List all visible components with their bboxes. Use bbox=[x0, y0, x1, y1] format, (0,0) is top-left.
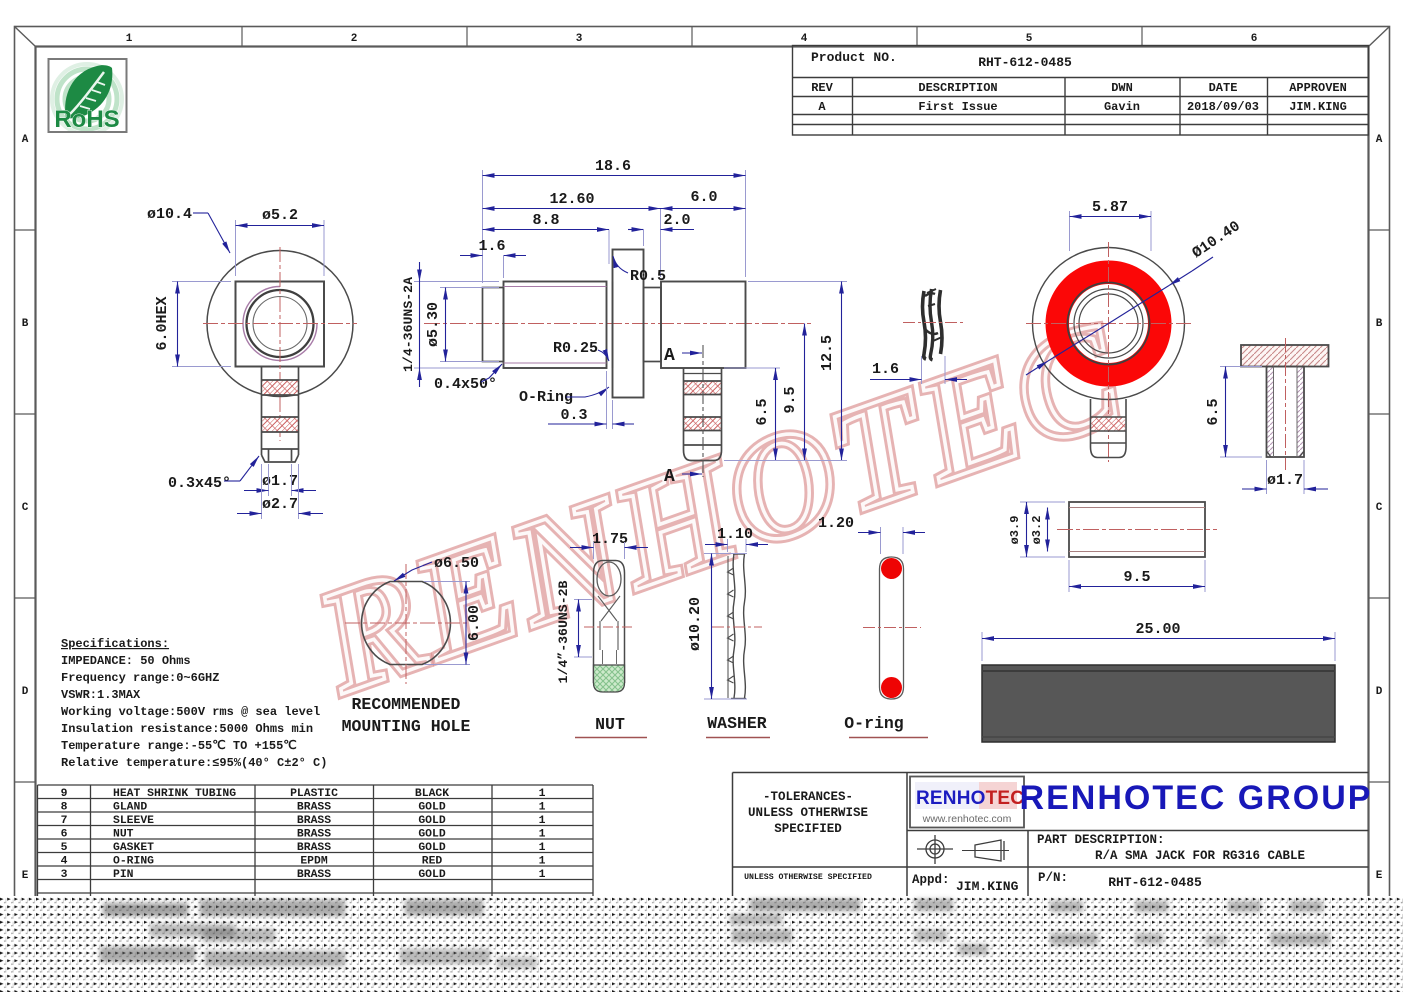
svg-text:O-ring: O-ring bbox=[844, 714, 903, 733]
svg-text:Product NO.: Product NO. bbox=[811, 50, 897, 65]
svg-text:9: 9 bbox=[61, 788, 68, 800]
svg-text:RHT-612-0485: RHT-612-0485 bbox=[978, 55, 1072, 70]
svg-text:BLACK: BLACK bbox=[415, 788, 449, 800]
svg-text:1: 1 bbox=[539, 802, 546, 814]
svg-text:RECOMMENDED: RECOMMENDED bbox=[352, 695, 461, 714]
svg-text:EPDM: EPDM bbox=[300, 856, 328, 868]
svg-text:2: 2 bbox=[351, 33, 358, 45]
svg-text:1: 1 bbox=[126, 33, 133, 45]
svg-text:A: A bbox=[818, 100, 826, 114]
svg-text:PART DESCRIPTION:: PART DESCRIPTION: bbox=[1037, 833, 1165, 847]
svg-text:R0.5: R0.5 bbox=[630, 268, 666, 285]
svg-text:6.0: 6.0 bbox=[690, 189, 717, 206]
svg-text:6.5: 6.5 bbox=[1205, 398, 1222, 425]
svg-text:Appd:: Appd: bbox=[912, 873, 950, 887]
svg-text:REV: REV bbox=[811, 81, 833, 95]
svg-text:GOLD: GOLD bbox=[418, 829, 446, 841]
svg-text:18.6: 18.6 bbox=[595, 158, 631, 175]
svg-text:BRASS: BRASS bbox=[297, 815, 331, 827]
svg-text:DESCRIPTION: DESCRIPTION bbox=[918, 81, 997, 95]
svg-text:1.75: 1.75 bbox=[592, 531, 628, 548]
svg-text:4: 4 bbox=[801, 33, 808, 45]
svg-text:0.3: 0.3 bbox=[560, 407, 587, 424]
svg-text:ø10.4: ø10.4 bbox=[147, 206, 192, 223]
svg-text:ø2.7: ø2.7 bbox=[262, 496, 298, 513]
svg-text:GLAND: GLAND bbox=[113, 802, 147, 814]
svg-text:A: A bbox=[664, 346, 675, 366]
svg-text:GOLD: GOLD bbox=[418, 802, 446, 814]
svg-text:-TOLERANCES-: -TOLERANCES- bbox=[763, 790, 853, 804]
svg-text:DATE: DATE bbox=[1209, 81, 1238, 95]
svg-text:PLASTIC: PLASTIC bbox=[290, 788, 338, 800]
svg-text:E: E bbox=[1376, 870, 1383, 882]
svg-text:6: 6 bbox=[61, 829, 68, 841]
svg-text:IMPEDANCE: 50 Ohms: IMPEDANCE: 50 Ohms bbox=[61, 654, 191, 668]
svg-text:ø1.7: ø1.7 bbox=[1267, 472, 1303, 489]
svg-text:8: 8 bbox=[61, 802, 68, 814]
svg-text:JIM.KING: JIM.KING bbox=[1289, 100, 1347, 114]
svg-text:Specifications:: Specifications: bbox=[61, 637, 169, 651]
svg-text:Gavin: Gavin bbox=[1104, 100, 1140, 114]
svg-text:GASKET: GASKET bbox=[113, 842, 154, 854]
svg-text:ø5.2: ø5.2 bbox=[262, 207, 298, 224]
svg-text:RENHOTEC GROUP: RENHOTEC GROUP bbox=[1020, 779, 1373, 817]
svg-text:2.0: 2.0 bbox=[663, 212, 690, 229]
svg-text:JIM.KING: JIM.KING bbox=[956, 879, 1019, 894]
svg-text:5.87: 5.87 bbox=[1092, 199, 1128, 216]
svg-text:BRASS: BRASS bbox=[297, 829, 331, 841]
svg-text:www.renhotec.com: www.renhotec.com bbox=[922, 813, 1012, 825]
svg-text:R/A SMA JACK FOR RG316 CABLE: R/A SMA JACK FOR RG316 CABLE bbox=[1095, 849, 1305, 863]
svg-text:B: B bbox=[22, 318, 29, 330]
svg-text:SLEEVE: SLEEVE bbox=[113, 815, 154, 827]
svg-text:1/4”-36UNS-2B: 1/4”-36UNS-2B bbox=[556, 580, 571, 683]
svg-text:RHT-612-0485: RHT-612-0485 bbox=[1108, 875, 1202, 890]
svg-text:DWN: DWN bbox=[1111, 81, 1133, 95]
svg-text:WASHER: WASHER bbox=[707, 714, 767, 733]
svg-text:25.00: 25.00 bbox=[1135, 621, 1180, 638]
svg-text:1: 1 bbox=[539, 856, 546, 868]
svg-text:RENHOTEC: RENHOTEC bbox=[916, 788, 1024, 809]
svg-text:ø1.7: ø1.7 bbox=[262, 473, 298, 490]
svg-text:5: 5 bbox=[61, 842, 68, 854]
svg-text:C: C bbox=[22, 502, 29, 514]
svg-text:VSWR:1.3MAX: VSWR:1.3MAX bbox=[61, 688, 141, 702]
svg-text:1: 1 bbox=[539, 788, 546, 800]
svg-text:ø6.50: ø6.50 bbox=[434, 555, 479, 572]
svg-text:GOLD: GOLD bbox=[418, 869, 446, 881]
svg-text:UNLESS OTHERWISE: UNLESS OTHERWISE bbox=[748, 806, 868, 820]
svg-text:6.0HEX: 6.0HEX bbox=[154, 296, 171, 350]
svg-text:4: 4 bbox=[61, 856, 68, 868]
svg-text:0.3x45°: 0.3x45° bbox=[168, 475, 231, 492]
svg-text:7: 7 bbox=[61, 815, 68, 827]
svg-text:R0.25: R0.25 bbox=[553, 340, 598, 357]
svg-text:6: 6 bbox=[1251, 33, 1258, 45]
svg-text:ø3.2: ø3.2 bbox=[1030, 516, 1044, 545]
svg-text:Insulation resistance:5000 Ohm: Insulation resistance:5000 Ohms min bbox=[61, 722, 313, 736]
svg-text:GOLD: GOLD bbox=[418, 815, 446, 827]
svg-text:A: A bbox=[1376, 134, 1383, 146]
svg-text:A: A bbox=[664, 467, 675, 487]
svg-text:ø3.9: ø3.9 bbox=[1008, 516, 1022, 545]
svg-text:9.5: 9.5 bbox=[782, 386, 799, 413]
svg-text:O-Ring: O-Ring bbox=[519, 389, 573, 406]
svg-text:RED: RED bbox=[422, 856, 443, 868]
svg-text:E: E bbox=[22, 870, 29, 882]
svg-text:2018/09/03: 2018/09/03 bbox=[1187, 100, 1259, 114]
svg-text:1: 1 bbox=[539, 815, 546, 827]
svg-text:O-RING: O-RING bbox=[113, 856, 154, 868]
svg-text:NUT: NUT bbox=[113, 829, 134, 841]
svg-text:Temperature range:-55℃ TO +155: Temperature range:-55℃ TO +155℃ bbox=[61, 739, 297, 753]
svg-text:ø5.30: ø5.30 bbox=[425, 302, 442, 347]
svg-text:1: 1 bbox=[539, 869, 546, 881]
svg-text:3: 3 bbox=[576, 33, 583, 45]
svg-text:D: D bbox=[22, 686, 29, 698]
svg-text:Frequency range:0~6GHZ: Frequency range:0~6GHZ bbox=[61, 671, 219, 685]
svg-text:BRASS: BRASS bbox=[297, 802, 331, 814]
svg-text:6.5: 6.5 bbox=[754, 398, 771, 425]
svg-text:8.8: 8.8 bbox=[532, 212, 559, 229]
svg-text:GOLD: GOLD bbox=[418, 842, 446, 854]
svg-text:1: 1 bbox=[539, 829, 546, 841]
svg-text:Working voltage:500V rms @ sea: Working voltage:500V rms @ sea level bbox=[61, 705, 320, 719]
svg-text:HEAT SHRINK TUBING: HEAT SHRINK TUBING bbox=[113, 788, 236, 800]
svg-text:PIN: PIN bbox=[113, 869, 134, 881]
svg-text:APPROVEN: APPROVEN bbox=[1289, 81, 1347, 95]
svg-text:RoHS: RoHS bbox=[54, 106, 119, 133]
svg-text:BRASS: BRASS bbox=[297, 869, 331, 881]
svg-text:C: C bbox=[1376, 502, 1383, 514]
svg-text:SPECIFIED: SPECIFIED bbox=[774, 822, 842, 836]
svg-text:D: D bbox=[1376, 686, 1383, 698]
svg-text:NUT: NUT bbox=[595, 715, 625, 734]
svg-text:12.5: 12.5 bbox=[819, 335, 836, 371]
svg-text:1.10: 1.10 bbox=[717, 526, 753, 543]
svg-text:UNLESS OTHERWISE SPECIFIED: UNLESS OTHERWISE SPECIFIED bbox=[744, 873, 872, 882]
svg-text:Relative temperature:≤95%(40°: Relative temperature:≤95%(40° C±2° C) bbox=[61, 756, 327, 770]
svg-text:1: 1 bbox=[539, 842, 546, 854]
svg-text:BRASS: BRASS bbox=[297, 842, 331, 854]
svg-text:12.60: 12.60 bbox=[549, 191, 594, 208]
svg-text:1.6: 1.6 bbox=[872, 361, 899, 378]
svg-text:5: 5 bbox=[1026, 33, 1033, 45]
svg-text:1.20: 1.20 bbox=[818, 515, 854, 532]
svg-text:B: B bbox=[1376, 318, 1383, 330]
svg-text:ø10.20: ø10.20 bbox=[687, 597, 704, 651]
svg-text:A: A bbox=[22, 134, 29, 146]
svg-text:1.6: 1.6 bbox=[478, 238, 505, 255]
svg-text:MOUNTING HOLE: MOUNTING HOLE bbox=[342, 717, 471, 736]
svg-text:P/N:: P/N: bbox=[1038, 871, 1068, 885]
svg-text:6.00: 6.00 bbox=[466, 605, 483, 641]
svg-text:3: 3 bbox=[61, 869, 68, 881]
svg-text:First Issue: First Issue bbox=[918, 100, 997, 114]
svg-text:9.5: 9.5 bbox=[1123, 569, 1150, 586]
svg-text:1/4-36UNS-2A: 1/4-36UNS-2A bbox=[401, 277, 416, 372]
